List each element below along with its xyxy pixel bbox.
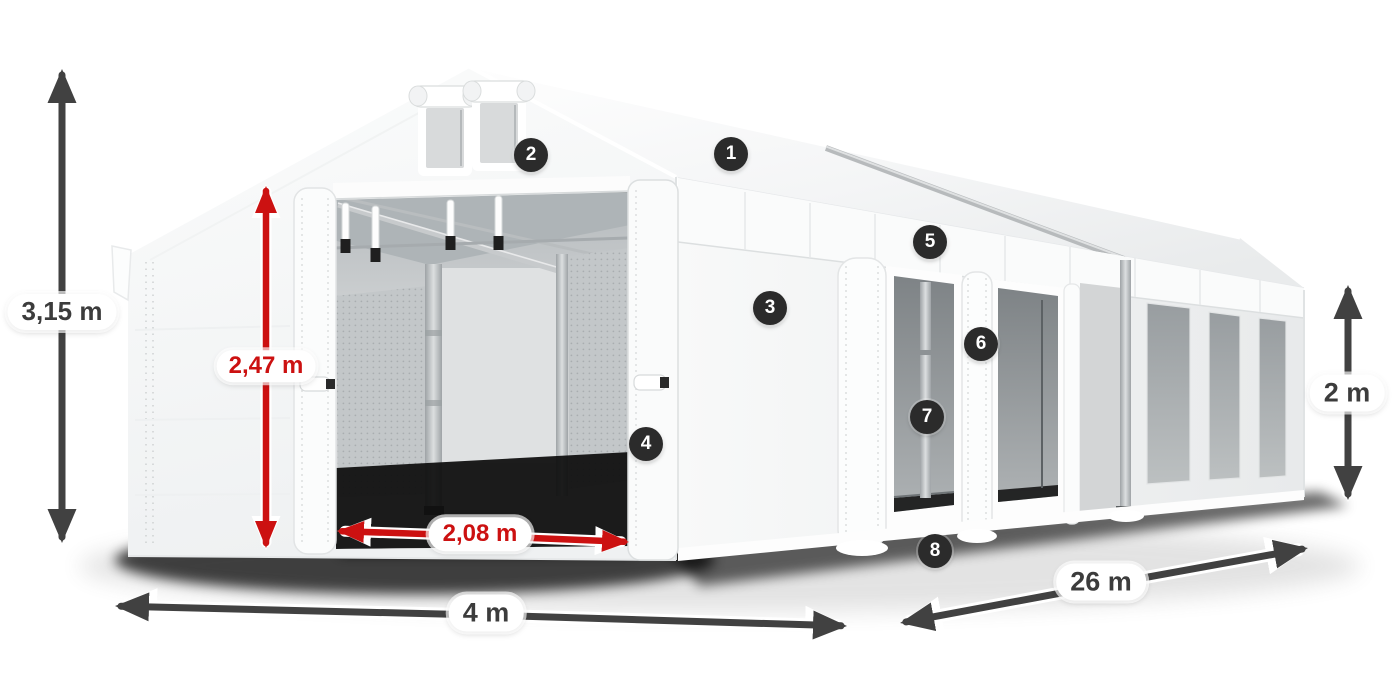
dimension-label-entrance-width: 2,08 m: [429, 517, 532, 551]
callout-badge-5[interactable]: 5: [913, 225, 947, 259]
front-door-right-leaf: [628, 180, 678, 560]
side-opening-2: [990, 279, 1066, 529]
side-windows-rear: [1147, 290, 1304, 497]
dimension-label-total-height: 3,15 m: [8, 294, 117, 330]
eave-corner-flap: [112, 246, 131, 300]
tent-illustration: [0, 0, 1400, 700]
interior-side-post: [920, 282, 931, 498]
callout-badge-6[interactable]: 6: [964, 327, 998, 361]
callout-badge-2[interactable]: 2: [514, 138, 548, 172]
callout-badge-3[interactable]: 3: [753, 291, 787, 325]
callout-badge-8[interactable]: 8: [918, 534, 952, 568]
door-handle: [634, 375, 669, 390]
tent-dimension-diagram: 3,15 m 2,47 m 2,08 m 4 m 26 m 2 m 1 2 3 …: [0, 0, 1400, 700]
dimension-label-tent-width: 4 m: [449, 594, 524, 631]
callout-badge-4[interactable]: 4: [629, 427, 663, 461]
entrance-interior: [330, 180, 635, 552]
dimension-label-side-height: 2 m: [1310, 374, 1385, 411]
module-joint: [1080, 260, 1135, 517]
callout-badge-1[interactable]: 1: [714, 137, 748, 171]
dimension-label-tent-length: 26 m: [1056, 563, 1146, 600]
callout-badge-7[interactable]: 7: [910, 400, 944, 434]
dimension-label-entrance-height: 2,47 m: [217, 350, 316, 382]
